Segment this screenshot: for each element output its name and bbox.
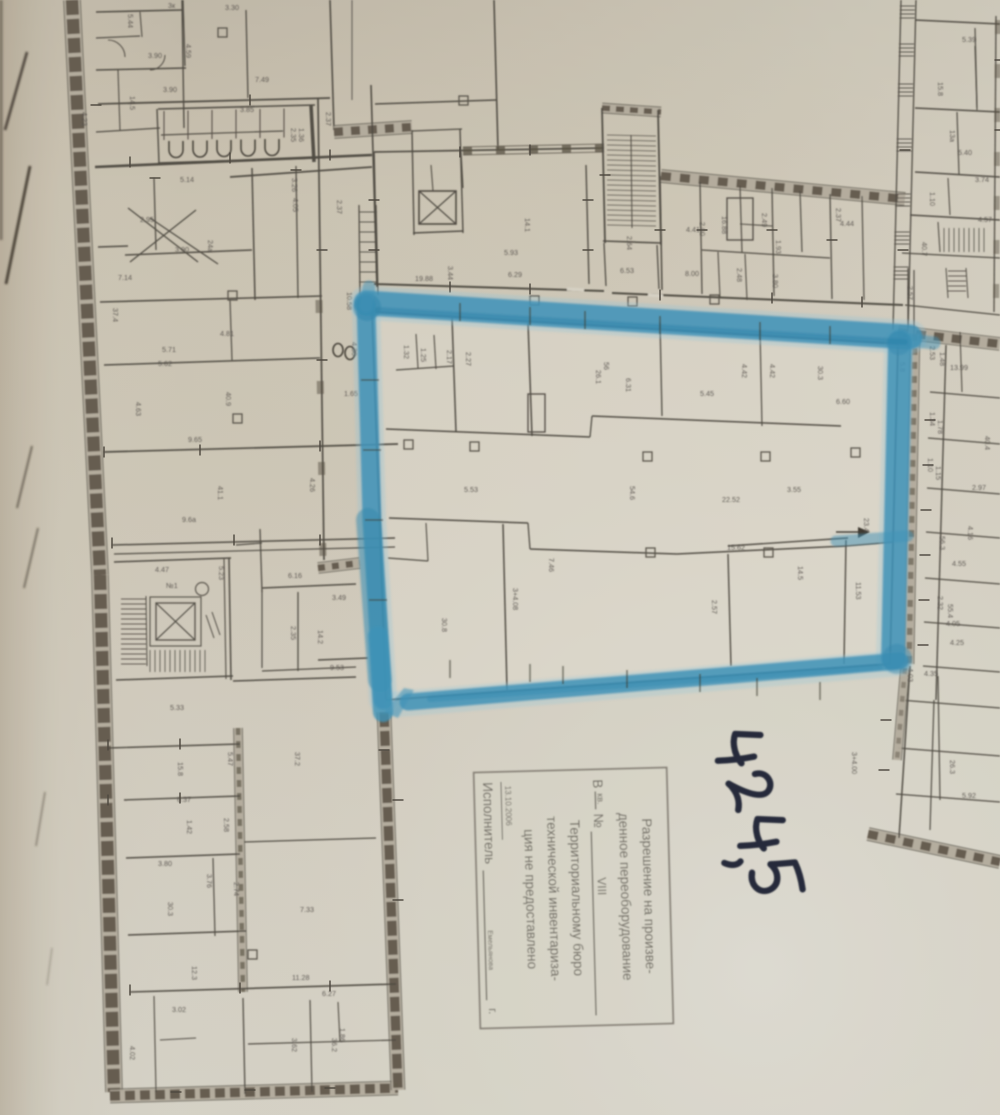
svg-text:36.2: 36.2: [330, 1038, 339, 1052]
svg-text:37.2: 37.2: [293, 752, 302, 766]
svg-text:7.49: 7.49: [255, 75, 269, 84]
svg-text:1.10: 1.10: [928, 192, 937, 206]
svg-text:24а: 24а: [206, 240, 215, 252]
svg-text:15.62: 15.62: [727, 543, 745, 552]
svg-text:2.49: 2.49: [760, 213, 769, 227]
svg-text:1.15: 1.15: [934, 466, 943, 480]
svg-text:3+4.00: 3+4.00: [850, 752, 859, 774]
svg-text:5.40: 5.40: [958, 148, 972, 157]
svg-text:2.37: 2.37: [324, 112, 333, 126]
svg-text:3.80: 3.80: [158, 859, 172, 868]
svg-text:9.65: 9.65: [188, 435, 202, 444]
svg-text:4.02: 4.02: [128, 1046, 137, 1060]
svg-text:3.55: 3.55: [787, 485, 801, 494]
svg-text:3.49: 3.49: [332, 593, 346, 602]
svg-text:3.85: 3.85: [240, 105, 254, 114]
svg-text:2.17: 2.17: [445, 350, 454, 364]
svg-text:11.53: 11.53: [854, 582, 863, 599]
svg-text:1.10: 1.10: [926, 458, 935, 472]
svg-text:№1: №1: [166, 581, 178, 590]
svg-text:3.02: 3.02: [172, 1005, 186, 1014]
svg-text:13а: 13а: [948, 130, 957, 142]
svg-text:5.33: 5.33: [170, 703, 184, 712]
svg-text:2.57: 2.57: [906, 286, 915, 300]
svg-text:56.3: 56.3: [938, 536, 947, 550]
svg-text:2.58: 2.58: [222, 818, 231, 832]
svg-text:4.63: 4.63: [134, 402, 143, 416]
svg-text:5.53: 5.53: [464, 485, 478, 494]
svg-text:1.32: 1.32: [402, 345, 411, 359]
svg-text:4.59: 4.59: [184, 44, 193, 58]
svg-text:3.74: 3.74: [975, 175, 989, 184]
svg-text:1.48: 1.48: [938, 352, 947, 366]
svg-text:4.55: 4.55: [952, 559, 966, 568]
svg-text:6.16: 6.16: [288, 571, 302, 580]
svg-text:4.47: 4.47: [155, 565, 169, 574]
svg-text:55.4: 55.4: [946, 604, 955, 618]
svg-text:9.6а: 9.6а: [182, 515, 196, 524]
svg-text:2.57: 2.57: [710, 600, 719, 614]
svg-text:15.8: 15.8: [176, 762, 185, 776]
svg-text:Исполнитель: Исполнитель: [480, 782, 497, 864]
svg-text:2.74: 2.74: [232, 882, 241, 896]
svg-text:14.1: 14.1: [523, 218, 532, 232]
svg-text:VIII: VIII: [594, 877, 608, 895]
svg-text:2.35: 2.35: [289, 128, 298, 142]
svg-text:4.05: 4.05: [946, 619, 960, 628]
svg-text:1.36: 1.36: [297, 128, 306, 142]
svg-text:2.97: 2.97: [972, 483, 986, 492]
svg-text:2.37: 2.37: [834, 208, 843, 222]
svg-text:5.45: 5.45: [700, 389, 714, 398]
svg-text:кв.: кв.: [595, 793, 605, 804]
svg-text:г.: г.: [486, 1008, 500, 1015]
svg-text:14.5: 14.5: [796, 566, 805, 580]
svg-text:4.25: 4.25: [950, 638, 964, 647]
svg-text:5.44: 5.44: [126, 14, 135, 28]
svg-text:3+4.08: 3+4.08: [511, 588, 520, 610]
svg-text:3.44: 3.44: [446, 266, 455, 280]
svg-text:4.05: 4.05: [291, 198, 300, 212]
svg-text:5.23: 5.23: [217, 566, 226, 580]
svg-text:11.28: 11.28: [292, 973, 309, 982]
svg-text:5.47: 5.47: [226, 752, 235, 766]
svg-text:3.90: 3.90: [175, 245, 189, 254]
svg-text:7.33: 7.33: [300, 905, 314, 914]
svg-text:19.88: 19.88: [415, 274, 433, 283]
svg-text:15.8: 15.8: [936, 82, 945, 96]
svg-text:26.3: 26.3: [948, 760, 957, 774]
svg-text:13.10.2006: 13.10.2006: [503, 786, 513, 827]
svg-text:2.27: 2.27: [464, 352, 473, 366]
svg-text:4.42: 4.42: [740, 364, 749, 378]
svg-text:3.30: 3.30: [225, 3, 239, 12]
svg-text:4.26: 4.26: [308, 478, 317, 492]
svg-text:2.95: 2.95: [140, 215, 154, 224]
svg-text:3к: 3к: [168, 1, 176, 10]
svg-text:Емельянова: Емельянова: [486, 930, 494, 970]
svg-text:№: №: [591, 813, 606, 828]
svg-text:6.60: 6.60: [836, 397, 850, 406]
svg-text:6.37: 6.37: [177, 795, 191, 804]
svg-text:5.39: 5.39: [962, 35, 976, 44]
svg-text:23.4: 23.4: [862, 518, 871, 532]
svg-text:4.81: 4.81: [220, 329, 234, 338]
svg-text:5.14: 5.14: [180, 175, 194, 184]
svg-text:2.48: 2.48: [735, 268, 744, 282]
svg-text:2.64: 2.64: [625, 236, 634, 250]
svg-text:3.62: 3.62: [290, 1038, 299, 1052]
svg-text:2.32: 2.32: [936, 596, 945, 610]
svg-text:4.42: 4.42: [768, 364, 777, 378]
svg-text:8.00: 8.00: [685, 269, 699, 278]
svg-text:40.7: 40.7: [920, 242, 929, 256]
svg-text:26.1: 26.1: [594, 370, 603, 384]
svg-text:5.92: 5.92: [962, 791, 976, 800]
svg-text:4.57: 4.57: [978, 215, 992, 224]
svg-text:37.4: 37.4: [111, 308, 120, 322]
svg-text:30.8: 30.8: [440, 618, 449, 632]
svg-text:В: В: [590, 779, 605, 788]
svg-text:3.26: 3.26: [290, 178, 299, 192]
svg-text:4.16: 4.16: [966, 526, 975, 540]
svg-text:4.41: 4.41: [686, 225, 700, 234]
svg-text:1.78: 1.78: [936, 420, 945, 434]
svg-text:41.1: 41.1: [216, 486, 225, 500]
svg-text:12.3: 12.3: [190, 966, 199, 980]
svg-text:22.52: 22.52: [722, 495, 740, 504]
svg-text:1.25: 1.25: [419, 348, 428, 362]
svg-text:2.37: 2.37: [335, 200, 344, 214]
svg-text:6.29: 6.29: [508, 270, 522, 279]
svg-text:5.93: 5.93: [504, 248, 518, 257]
svg-text:5.62: 5.62: [158, 359, 172, 368]
svg-text:30.3: 30.3: [166, 902, 175, 916]
svg-text:14.2: 14.2: [316, 630, 325, 644]
svg-text:6.53: 6.53: [620, 266, 634, 275]
svg-text:13.99: 13.99: [950, 363, 968, 372]
svg-text:56: 56: [602, 362, 611, 370]
svg-text:3.90: 3.90: [163, 85, 177, 94]
svg-text:7.46: 7.46: [547, 558, 556, 572]
svg-text:16.88: 16.88: [720, 216, 729, 234]
svg-text:30.3: 30.3: [816, 366, 825, 380]
svg-text:3.90: 3.90: [148, 51, 162, 60]
svg-text:3.76: 3.76: [205, 874, 214, 888]
svg-text:54.6: 54.6: [628, 486, 637, 500]
svg-text:5.71: 5.71: [162, 345, 176, 354]
svg-text:2.35: 2.35: [289, 626, 298, 640]
svg-text:1.34: 1.34: [928, 412, 937, 426]
svg-text:40.4: 40.4: [983, 436, 992, 450]
svg-text:3.80: 3.80: [771, 274, 780, 288]
svg-text:4.23: 4.23: [80, 112, 89, 126]
svg-text:6.27: 6.27: [322, 989, 336, 998]
svg-text:40.9: 40.9: [224, 392, 233, 406]
svg-text:1.93: 1.93: [774, 240, 783, 254]
svg-text:4.35: 4.35: [924, 669, 938, 678]
svg-text:6.31: 6.31: [624, 378, 633, 392]
svg-text:7.14: 7.14: [118, 273, 132, 282]
svg-text:9.53: 9.53: [330, 663, 344, 672]
svg-text:2.00: 2.00: [698, 222, 707, 236]
svg-text:1.42: 1.42: [185, 820, 194, 834]
svg-text:14.5: 14.5: [128, 96, 137, 110]
